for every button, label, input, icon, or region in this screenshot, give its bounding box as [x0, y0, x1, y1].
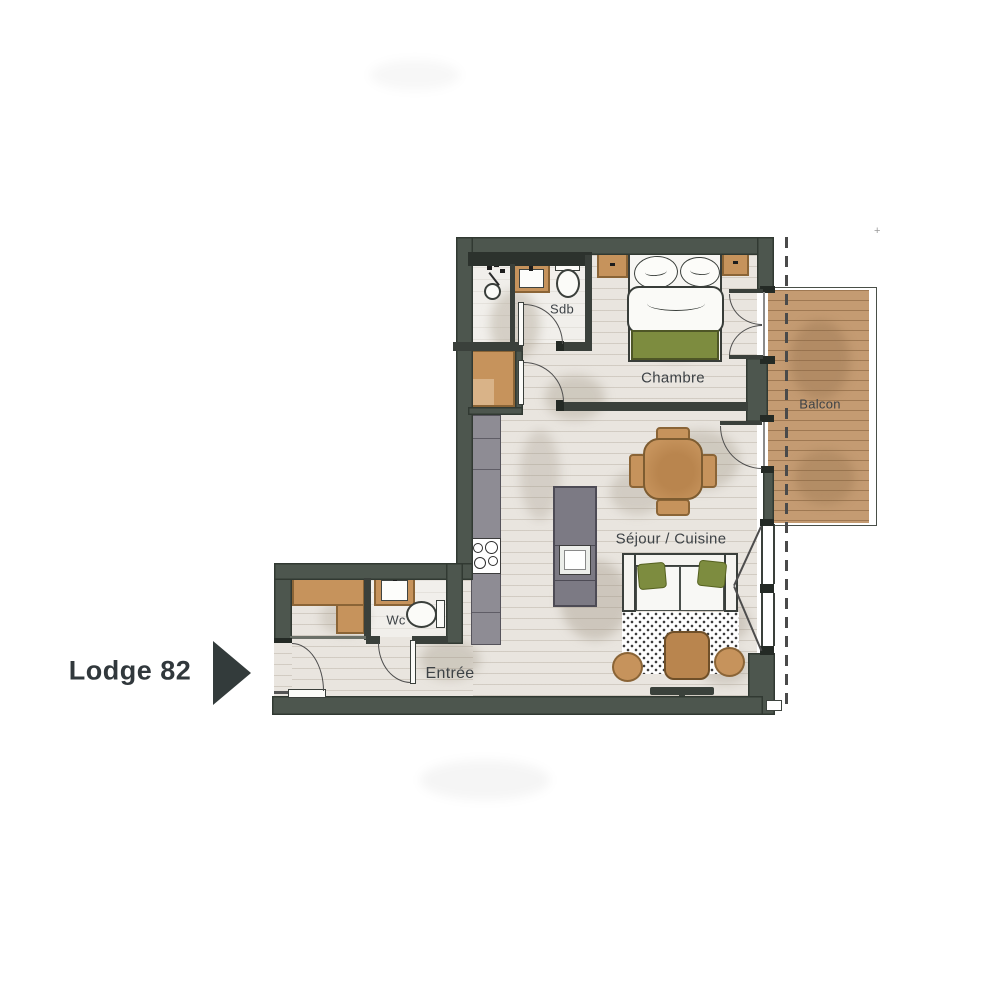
shower-fixture — [487, 266, 492, 270]
pillow-crease — [690, 266, 711, 275]
window-living-lower — [761, 593, 775, 646]
dining-chair-bottom — [656, 499, 690, 516]
window-jamb — [761, 466, 774, 473]
floor-entry-threshold — [274, 642, 292, 696]
room-label-chambre: Chambre — [641, 370, 705, 387]
wall-closet-niche-bottom — [468, 407, 523, 415]
entry-jamb — [274, 638, 292, 643]
wall-wc-right — [446, 563, 463, 644]
bed — [628, 251, 722, 362]
kitchen-counter — [471, 415, 501, 645]
closet-front-line — [290, 636, 366, 639]
coffee-table — [664, 631, 710, 680]
sofa-cushion-right — [697, 560, 728, 589]
counter-divider — [472, 612, 500, 613]
balcony-door-threshold — [763, 422, 765, 466]
counter-divider — [472, 438, 500, 439]
wall-wing-top — [274, 563, 473, 580]
dining-table — [643, 438, 703, 500]
tv — [650, 687, 714, 695]
counter-divider — [472, 469, 500, 470]
island-sink-basin — [564, 550, 586, 570]
entry-arrow-icon — [213, 641, 251, 705]
nightstand-handle — [733, 261, 738, 264]
french-door-leaf-top — [729, 289, 763, 293]
wall-sdb-bottom-right — [561, 342, 592, 351]
registration-mark: + — [874, 225, 880, 237]
cooktop-burner — [488, 556, 498, 566]
wall-window-pier — [763, 470, 774, 524]
wc-sink-basin — [381, 580, 408, 601]
wall-chambre-sejour — [563, 402, 748, 411]
window-living-upper — [761, 524, 775, 584]
window-mullion — [760, 584, 774, 593]
closet-cabinet-return — [336, 604, 365, 634]
bed-blanket — [631, 330, 719, 360]
pouf-right — [714, 647, 745, 677]
wall-sdb-chambre — [585, 255, 592, 349]
french-door-leaf-bottom — [729, 355, 763, 359]
wall-shower-partition — [510, 264, 515, 344]
pillow-crease — [645, 266, 668, 277]
island-divider — [555, 580, 595, 581]
wall-wc-bottom-right — [412, 636, 448, 644]
room-label-entree: Entrée — [426, 665, 475, 683]
wc-toilet-tank — [436, 600, 445, 628]
window-below-corner — [766, 700, 782, 711]
duvet — [627, 286, 724, 334]
cooktop-burner — [473, 543, 483, 553]
pillow-right — [679, 256, 721, 289]
shower-wall-band — [468, 252, 592, 266]
cooktop-burner — [474, 557, 486, 569]
wc-toilet-bowl — [406, 601, 437, 628]
french-door-threshold — [763, 292, 765, 356]
floor-plan-page: Sdb Chambre Balcon Séjour / Cuisine Wc E… — [0, 0, 1000, 1000]
wall-bottom — [272, 696, 763, 715]
shower-fixture — [500, 269, 505, 273]
room-label-balcon: Balcon — [799, 397, 841, 412]
kitchen-cabinet-shade — [470, 379, 494, 405]
door-jamb — [760, 415, 774, 422]
cooktop-burner — [485, 541, 498, 554]
balcony-door-leaf — [720, 421, 762, 425]
wall-balcony-pier — [746, 358, 768, 422]
window-mullion — [760, 519, 774, 526]
scan-smudge — [370, 60, 460, 90]
scan-smudge — [420, 760, 550, 800]
wall-wc-left — [364, 578, 371, 640]
room-label-sdb: Sdb — [550, 302, 574, 317]
sofa-arm-left — [622, 553, 636, 612]
duvet-fold — [647, 296, 705, 311]
bathroom-toilet-bowl — [556, 269, 580, 298]
nightstand-handle — [610, 263, 615, 266]
lodge-title: Lodge 82 — [69, 656, 192, 687]
pouf-left — [612, 652, 643, 682]
sofa-cushion-left — [637, 562, 667, 590]
vanity-basin — [519, 269, 544, 288]
closet-cabinet — [292, 578, 365, 606]
room-label-sejour-cuisine: Séjour / Cuisine — [616, 531, 727, 548]
room-label-wc: Wc — [386, 613, 405, 628]
roof-overhang-dashed-line — [785, 237, 788, 710]
wall-bedroom-right — [757, 237, 774, 290]
